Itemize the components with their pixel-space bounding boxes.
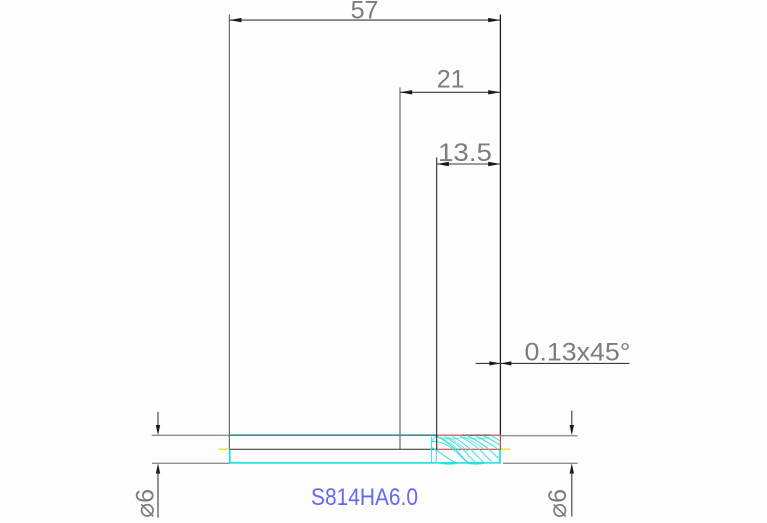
svg-text:0.13x45°: 0.13x45° [525, 338, 631, 366]
svg-text:57: 57 [351, 0, 379, 25]
svg-text:⌀6: ⌀6 [132, 489, 160, 518]
svg-text:21: 21 [437, 66, 465, 94]
svg-text:S814HA6.0: S814HA6.0 [311, 484, 418, 511]
svg-text:⌀6: ⌀6 [544, 489, 572, 518]
svg-text:13.5: 13.5 [438, 139, 492, 167]
